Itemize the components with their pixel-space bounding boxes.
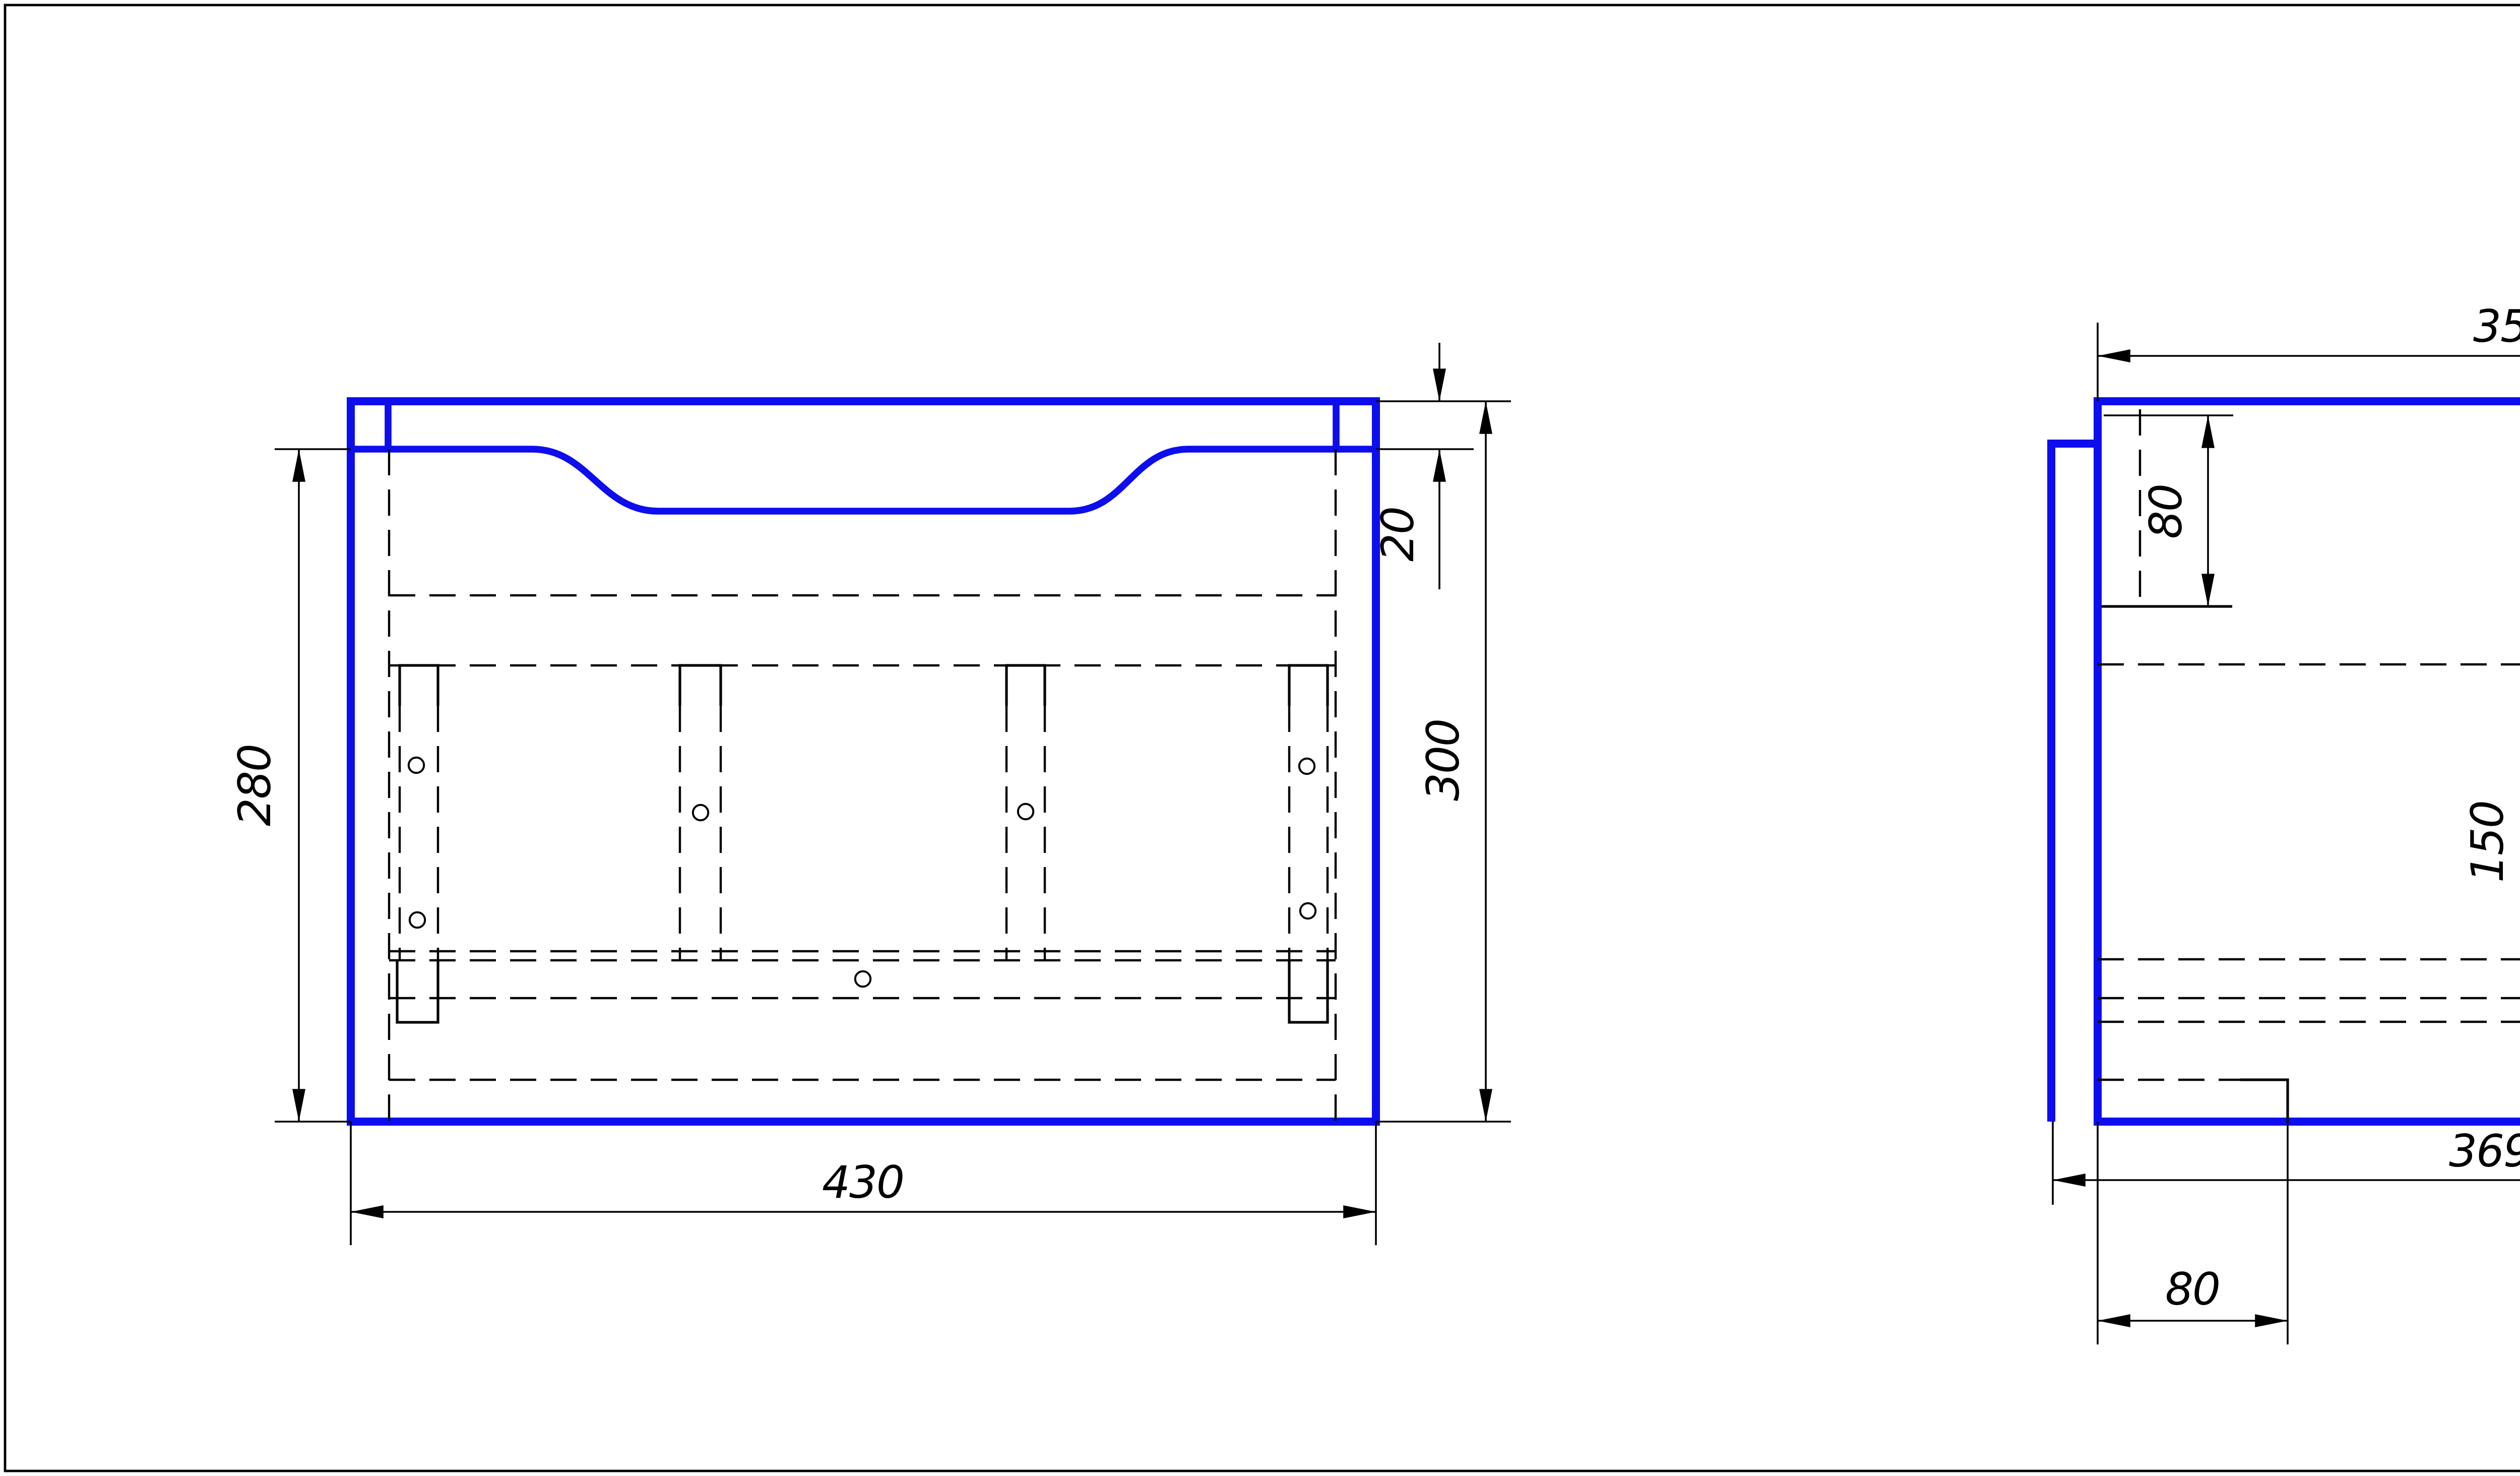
sheet-border <box>5 5 2520 1471</box>
dim-side-rail-depth: 80 <box>2104 415 2233 606</box>
front-rail-recess <box>351 449 1376 511</box>
dim-label-80-top: 80 <box>2140 484 2192 539</box>
dim-label-300-front: 300 <box>1417 719 1469 801</box>
dim-label-369: 369 <box>2449 1125 2520 1177</box>
dim-side-drawer-height: 150 <box>2462 664 2520 1022</box>
dim-side-bottom-width: 369 <box>2053 1122 2520 1205</box>
front-pockets <box>397 665 1328 1022</box>
cad-canvas: 280 430 20 300 <box>0 0 2520 1476</box>
drawing-sheet: { "sheet": { "background": "#ffffff", "p… <box>0 0 2520 1476</box>
dim-label-350: 350 <box>2473 300 2520 352</box>
front-hidden-lines <box>389 449 1336 1121</box>
dim-label-20: 20 <box>1372 507 1424 562</box>
dim-label-430: 430 <box>822 1156 904 1208</box>
dim-front-opening-height: 280 <box>229 449 351 1122</box>
front-view: 280 430 20 300 <box>229 343 1511 1245</box>
dim-label-80-bottom: 80 <box>2165 1263 2220 1315</box>
dim-side-top-width: 350 <box>2098 300 2520 401</box>
dim-label-150: 150 <box>2462 801 2513 883</box>
side-back-panel <box>2051 444 2098 1122</box>
dim-side-bottom-inset: 80 <box>2098 1122 2288 1344</box>
dim-front-width: 430 <box>351 1122 1376 1245</box>
dim-front-top-rail: 20 <box>1372 343 1511 589</box>
side-view: 350 80 110 120 150 3 <box>2051 300 2520 1344</box>
dim-label-280: 280 <box>229 745 281 826</box>
